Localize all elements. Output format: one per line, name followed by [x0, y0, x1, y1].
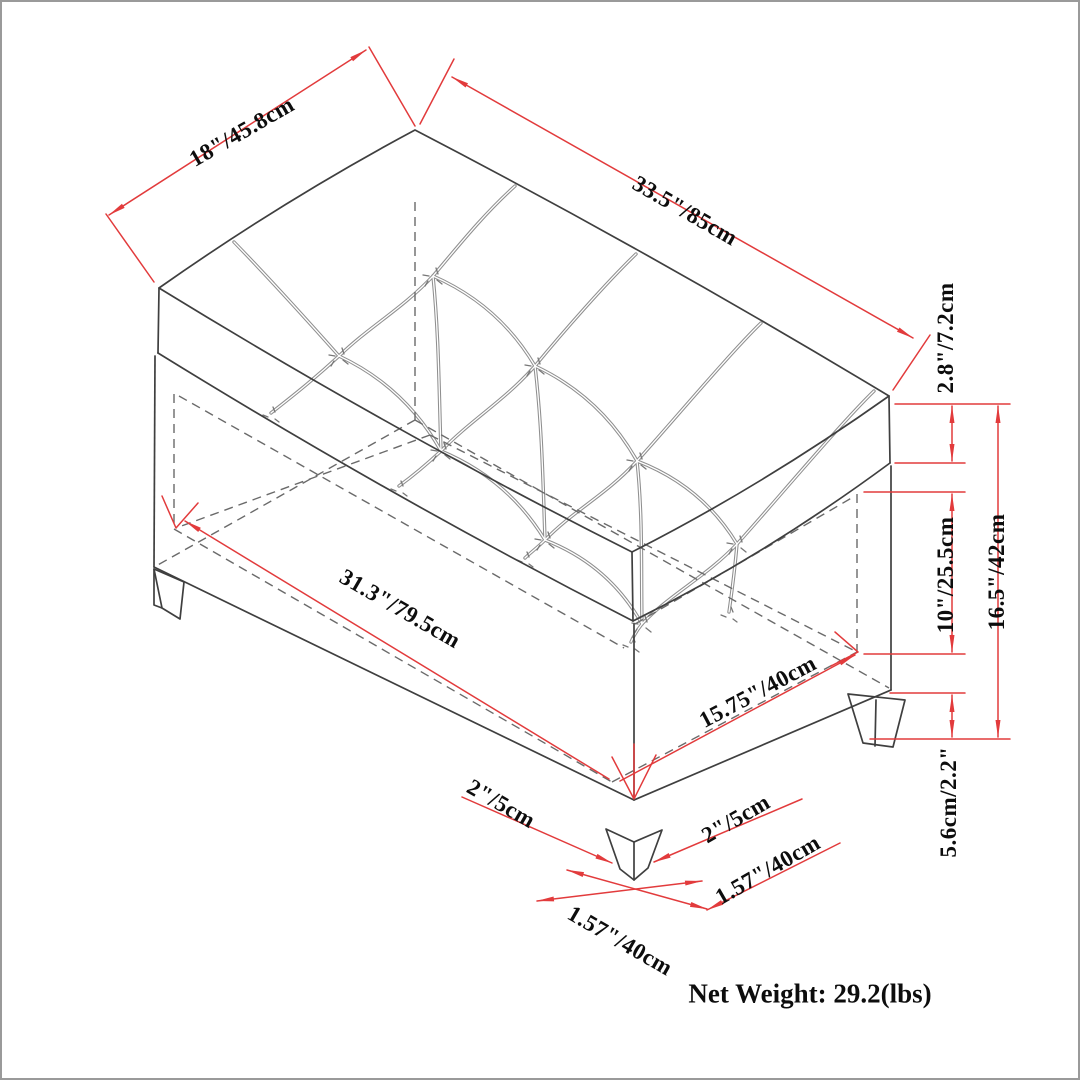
dim-line-foot-b: [567, 870, 707, 909]
net-weight-text: Net Weight: 29.2(lbs): [688, 979, 931, 1010]
label-lid-thickness: 2.8"/7.2cm: [933, 282, 959, 393]
label-overall-height: 16.5"/42cm: [984, 514, 1010, 631]
leg-left: [154, 569, 184, 619]
lid-top-surface: [159, 130, 889, 552]
dim-line-interior-length: [185, 521, 609, 779]
lid-tufting-channels: [234, 186, 874, 642]
ottoman-outline: [154, 130, 905, 880]
ottoman-diagram: [2, 2, 1080, 1080]
diagram-page: 18"/45.8cm 33.5"/85cm 31.3"/79.5cm 15.75…: [0, 0, 1080, 1080]
dim-line-interior-depth: [620, 655, 855, 781]
box-left-edge: [154, 356, 155, 567]
leg-front: [606, 829, 662, 880]
lid-tufting-channel-highlights: [234, 186, 874, 642]
label-leg-height: 5.6cm/2.2": [936, 746, 962, 857]
dimension-lines: [106, 47, 1010, 910]
label-interior-height: 10"/25.5cm: [933, 517, 959, 634]
